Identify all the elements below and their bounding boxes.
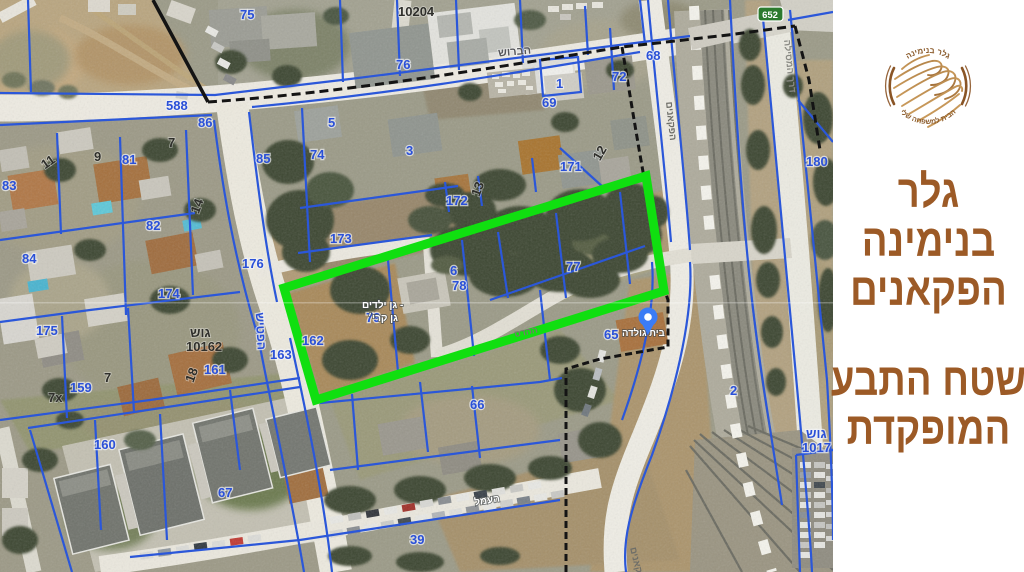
svg-text:174: 174 xyxy=(158,286,180,301)
svg-text:הפטיש: הפטיש xyxy=(253,312,269,350)
svg-text:75: 75 xyxy=(240,7,254,22)
svg-text:81: 81 xyxy=(122,152,136,167)
svg-text:171: 171 xyxy=(560,159,582,174)
svg-text:83: 83 xyxy=(2,178,16,193)
svg-text:68: 68 xyxy=(646,48,660,63)
svg-text:65: 65 xyxy=(604,327,618,342)
svg-text:39: 39 xyxy=(410,532,424,547)
svg-text:69: 69 xyxy=(542,95,556,110)
svg-text:7: 7 xyxy=(104,370,111,385)
svg-text:66: 66 xyxy=(470,397,484,412)
svg-text:7: 7 xyxy=(168,135,175,150)
svg-text:גוש: גוש xyxy=(190,325,211,340)
svg-text:77: 77 xyxy=(566,259,580,274)
svg-text:7x: 7x xyxy=(48,390,63,405)
svg-text:78: 78 xyxy=(452,278,466,293)
svg-text:67: 67 xyxy=(218,485,232,500)
svg-text:162: 162 xyxy=(302,333,324,348)
svg-text:הבית למשפחה שלי: הבית למשפחה שלי xyxy=(899,107,958,126)
svg-text:84: 84 xyxy=(22,251,37,266)
svg-text:82: 82 xyxy=(146,218,160,233)
svg-text:160: 160 xyxy=(94,437,116,452)
svg-text:85: 85 xyxy=(256,151,270,166)
svg-text:בית גולדה: בית גולדה xyxy=(622,328,665,339)
svg-text:5: 5 xyxy=(328,115,335,130)
svg-text:10162: 10162 xyxy=(186,339,222,354)
svg-text:76: 76 xyxy=(396,57,410,72)
svg-text:גן קרי׳: גן קרי׳ xyxy=(368,312,398,324)
svg-text:176: 176 xyxy=(242,256,264,271)
svg-text:86: 86 xyxy=(198,115,212,130)
svg-text:72: 72 xyxy=(612,69,626,84)
svg-text:172: 172 xyxy=(446,193,468,208)
svg-text:9: 9 xyxy=(94,149,101,164)
svg-text:652: 652 xyxy=(762,10,778,21)
svg-text:175: 175 xyxy=(36,323,58,338)
svg-text:163: 163 xyxy=(270,347,292,362)
svg-text:173: 173 xyxy=(330,231,352,246)
svg-text:588: 588 xyxy=(166,98,188,113)
svg-text:2: 2 xyxy=(730,383,737,398)
svg-text:10204: 10204 xyxy=(398,4,435,19)
svg-text:6: 6 xyxy=(450,263,457,278)
svg-text:גלר בנימינה: גלר בנימינה xyxy=(904,46,952,61)
svg-text:159: 159 xyxy=(70,380,92,395)
svg-text:3: 3 xyxy=(406,143,413,158)
svg-text:74: 74 xyxy=(310,147,325,162)
svg-text:גן ילדים -: גן ילדים - xyxy=(362,299,403,311)
svg-text:161: 161 xyxy=(204,362,226,377)
svg-text:1: 1 xyxy=(556,76,563,91)
